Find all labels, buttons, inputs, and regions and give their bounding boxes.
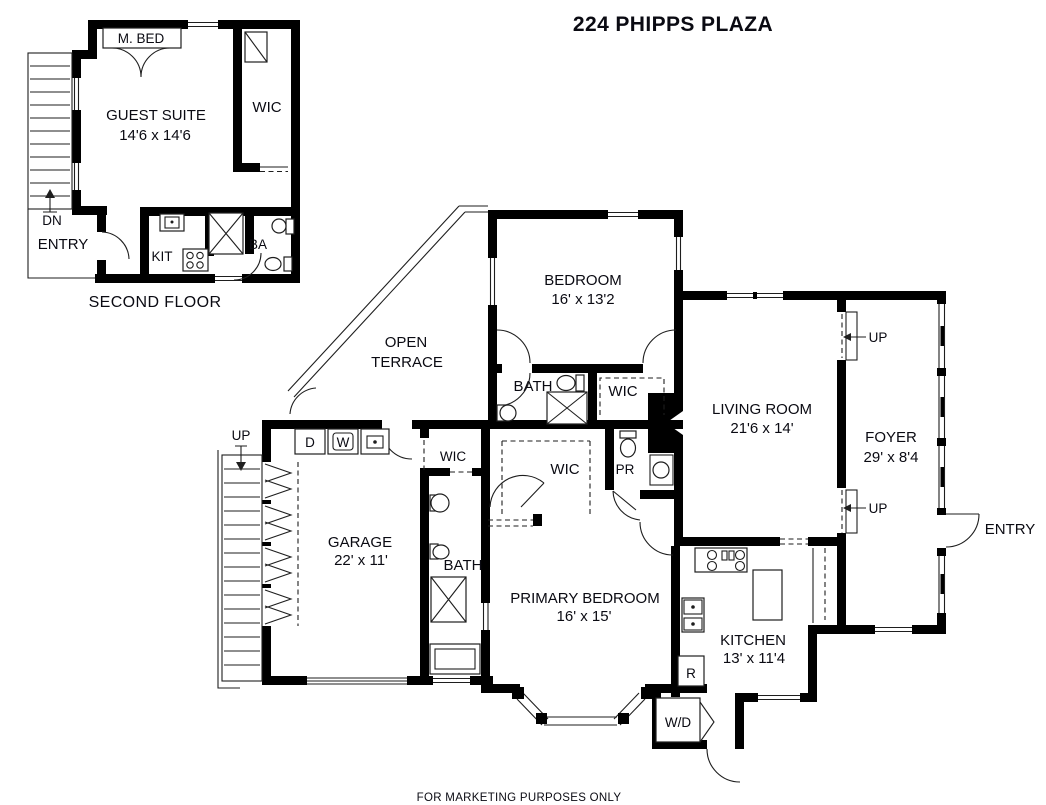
wd-label: W/D [665, 715, 691, 730]
guest-suite-dims: 14'6 x 14'6 [119, 127, 191, 144]
second-entry-door-icon [102, 232, 129, 259]
dryer-label: D [305, 435, 315, 450]
kit-label: KIT [151, 249, 172, 264]
living-room-label: LIVING ROOM [712, 401, 812, 418]
kitchen-exit-door-icon [707, 749, 740, 782]
garage-label: GARAGE [328, 534, 392, 551]
plan-title: 224 PHIPPS PLAZA [573, 13, 773, 36]
kitchen-island [753, 570, 782, 620]
bedroom-label: BEDROOM [544, 272, 622, 289]
entry-label: ENTRY [38, 236, 89, 253]
entry-door-icon [946, 514, 979, 547]
kitchen-sink-icon [682, 598, 704, 632]
stove-icon [695, 548, 747, 572]
exterior-stairs [218, 446, 262, 688]
terrace-label-2: TERRACE [371, 354, 443, 371]
kitchen-label: KITCHEN [720, 632, 786, 649]
foyer-dims: 29' x 8'4 [864, 449, 919, 466]
up-foyer-top-label: UP [869, 330, 888, 345]
shower-icon [547, 392, 587, 424]
terrace-side-door-icon [290, 388, 316, 414]
wic-hall-label: WIC [550, 461, 579, 478]
wic-label: WIC [252, 99, 281, 116]
up-arrowhead [236, 462, 246, 471]
guest-suite-label: GUEST SUITE [106, 107, 206, 124]
terrace-parapet [288, 206, 488, 414]
washer-label: W [337, 435, 350, 450]
foyer-label: FOYER [865, 429, 917, 446]
living-room-dims: 21'6 x 14' [730, 420, 793, 437]
pr-label: PR [616, 462, 635, 477]
kitchen-sink-icon [160, 214, 184, 231]
kitchen-dims: 13' x 11'4 [723, 650, 785, 667]
primary-door-icon [640, 522, 673, 555]
fridge-label: R [686, 666, 696, 681]
second-floor-plan: M. BED GUEST SUITE 14'6 x 14'6 WIC DN EN… [28, 20, 300, 311]
wic-bedroom-label: WIC [608, 383, 637, 400]
garage-dims: 22' x 11' [334, 552, 388, 569]
second-floor-caption: SECOND FLOOR [89, 294, 222, 311]
terrace-label-1: OPEN [385, 334, 428, 351]
shower-icon [431, 577, 466, 622]
sink-icon [272, 219, 294, 234]
sink-icon [430, 494, 449, 512]
sink-icon [650, 455, 673, 485]
up-stairs-label: UP [232, 428, 251, 443]
toilet-icon [265, 257, 292, 271]
primary-bedroom-dims: 16' x 15' [557, 608, 612, 625]
tub-icon [430, 644, 480, 674]
wic-shelf-icon [245, 32, 267, 62]
m-bed-double-door-icon [112, 48, 170, 77]
floor-plan: 224 PHIPPS PLAZA [0, 0, 1046, 805]
floor-plan-page: 224 PHIPPS PLAZA [0, 0, 1046, 805]
main-floor-labels: OPEN TERRACE BEDROOM 16' x 13'2 BATH WIC… [232, 272, 1036, 730]
wic-hall-door-icon [490, 475, 544, 507]
stove-icon [183, 249, 208, 271]
sink-icon [497, 405, 516, 421]
second-floor-fixtures [160, 32, 294, 271]
bay-window-icon [512, 687, 653, 725]
up-foyer-bottom-label: UP [869, 501, 888, 516]
dn-arrowhead [45, 189, 55, 198]
primary-bedroom-label: PRIMARY BEDROOM [510, 590, 659, 607]
bedroom-door-left-icon [497, 330, 530, 363]
wic-garage-label: WIC [440, 449, 466, 464]
marketing-disclaimer: FOR MARKETING PURPOSES ONLY [417, 792, 622, 804]
window-mullion [753, 292, 757, 299]
toilet-icon [620, 431, 636, 457]
utility-box [361, 429, 389, 454]
entry-label: ENTRY [985, 521, 1036, 538]
bath-upper-label: BATH [514, 378, 553, 395]
bedroom-dims: 16' x 13'2 [551, 291, 614, 308]
shower-icon [209, 213, 243, 254]
ba-label: BA [249, 237, 267, 252]
dn-arrow [43, 196, 57, 212]
pr-door-icon [613, 491, 640, 520]
m-bed-label: M. BED [118, 31, 165, 46]
dn-label: DN [42, 213, 62, 228]
toilet-icon [557, 375, 584, 391]
bedroom-door-right-icon [643, 330, 676, 363]
bath-lower-label: BATH [444, 557, 483, 574]
main-floor-plan: OPEN TERRACE BEDROOM 16' x 13'2 BATH WIC… [218, 206, 1035, 782]
